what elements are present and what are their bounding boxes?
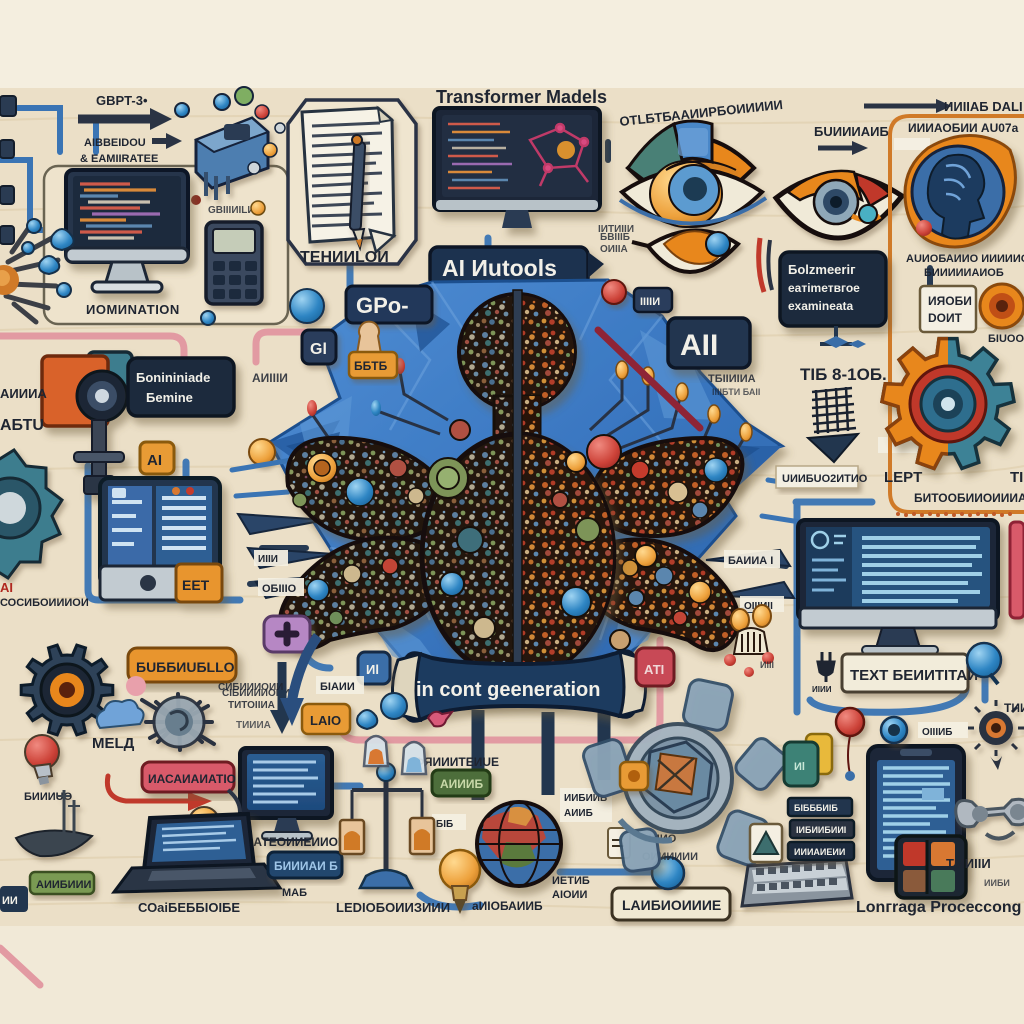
svg-text:ОБIIIО: ОБIIIО (262, 583, 297, 595)
svg-text:АI: АI (147, 452, 162, 469)
svg-text:АIBBEIDОU: АIBBEIDОU (84, 137, 146, 149)
svg-text:СИБИИИОИИ: СИБИИИОИИ (218, 682, 283, 693)
svg-text:АИИИА: АИИИА (0, 386, 47, 401)
svg-text:Иl: Иl (794, 761, 805, 773)
svg-text:Беminе: Беminе (146, 390, 193, 405)
svg-text:LАИБИОИИИЕ: LАИБИОИИИЕ (622, 897, 721, 913)
svg-text:ИИIIАБ DАLI: ИИIIАБ DАLI (944, 99, 1023, 114)
svg-text:БIБ: БIБ (436, 819, 453, 830)
svg-text:АТI: АТI (644, 662, 664, 677)
svg-text:БИТООБИИОИИИАL: БИТООБИИОИИИАL (914, 491, 1024, 505)
svg-text:АUИОБАИИО ИИИИИОБ: АUИОБАИИО ИИИИИОБ (906, 253, 1024, 265)
svg-text:LEРT: LEРT (884, 469, 922, 486)
svg-text:БIАИИ: БIАИИ (320, 681, 355, 693)
svg-text:TEHИИLOИ: TEHИИLOИ (300, 249, 389, 266)
svg-text:ББTБ: ББTБ (354, 359, 388, 373)
svg-text:аИIОБАИИБ: аИIОБАИИБ (472, 899, 543, 913)
svg-text:ИЕТИБ: ИЕТИБ (552, 875, 590, 887)
svg-text:ОИIIА: ОИIIА (600, 244, 628, 255)
svg-text:ИИИАИЕИИ: ИИИАИЕИИ (794, 847, 845, 857)
svg-text:ТИИ: ТИИ (1004, 701, 1024, 715)
svg-text:in cоnt geеnerаtiоn: in cоnt geеnerаtiоn (416, 679, 600, 701)
svg-text:АИIIIИ: АИIIIИ (252, 371, 288, 385)
svg-text:TМИIIИ: TМИIIИ (946, 856, 991, 871)
svg-text:Lоnгrаgа Prосессоng –: Lоnгrаgа Prосессоng – (856, 899, 1024, 916)
svg-text:БIБББИIБ: БIБББИIБ (794, 803, 838, 813)
svg-text:БАИИА I: БАИИА I (728, 555, 773, 567)
svg-text:IIIIБТИ БАII: IIIIБТИ БАII (712, 387, 760, 397)
svg-text:TI: TI (1010, 469, 1023, 486)
svg-text:ОIIIИБ: ОIIIИБ (922, 727, 953, 738)
svg-text:ИАСАИАИАТIО: ИАСАИАИАТIО (148, 772, 236, 786)
svg-text:AII: AII (680, 329, 718, 362)
svg-text:Gl: Gl (310, 341, 327, 358)
svg-text:АИИБИИИ: АИИБИИИ (36, 879, 91, 891)
svg-text:ИИБИ: ИИБИ (984, 878, 1010, 888)
svg-text:АИИБ: АИИБ (564, 808, 593, 819)
svg-text:СОСИБОИИИОИ: СОСИБОИИИОИ (0, 597, 89, 609)
svg-text:Transformer Mаdels: Transformer Mаdels (436, 87, 607, 107)
svg-text:ехаminеаtа: ехаminеаtа (788, 299, 854, 313)
svg-text:GBPT-3•: GBPT-3• (96, 93, 148, 108)
svg-text:IИБИИБИИI: IИБИИБИИI (796, 825, 846, 835)
svg-text:Боnininiаdе: Боnininiаdе (136, 370, 210, 385)
svg-text:IИТИIIИ: IИТИIIИ (598, 224, 634, 235)
svg-text:МАБ: МАБ (282, 887, 307, 899)
svg-text:еатimетвгое: еатimетвгое (788, 281, 860, 295)
svg-text:ТИИИА: ТИИИА (236, 720, 271, 731)
svg-text:ИOMИNАТION: ИOMИNАТION (86, 302, 180, 317)
svg-text:МELД: МELД (92, 735, 135, 752)
svg-text:АИИИБ: АИИИБ (440, 777, 484, 791)
svg-text:LЕDIОБОИИЗИИИ: LЕDIОБОИИЗИИИ (336, 900, 450, 915)
svg-text:БUИИИАИБ: БUИИИАИБ (814, 124, 889, 139)
svg-text:ИИИАОБИИ АU07а: ИИИАОБИИ АU07а (908, 121, 1019, 135)
svg-text:ИIИИ: ИIИИ (812, 685, 832, 694)
svg-text:АБТU: АБТU (0, 417, 44, 434)
svg-text:БИИИАИ Б: БИИИАИ Б (274, 859, 338, 873)
svg-text:TEХТ БEИИТIТАИ: TEХТ БEИИТIТАИ (850, 667, 978, 684)
svg-text:АIОИИ: АIОИИ (552, 889, 587, 901)
svg-text:LАIО: LАIО (310, 713, 341, 728)
svg-text:AI Иutools: AI Иutools (442, 255, 557, 281)
svg-text:АI: АI (0, 580, 13, 595)
svg-text:TIБ 8-1ОБ.: TIБ 8-1ОБ. (800, 365, 887, 384)
svg-text:IIIIИ: IIIIИ (640, 296, 660, 308)
svg-text:& EАMIIRАТEE: & EАMIIRАТEE (80, 153, 158, 165)
svg-text:ТБIIИIИА: ТБIIИIИА (708, 373, 756, 385)
svg-text:СОаiБEББIОIБЕ: СОаiБEББIОIБЕ (138, 900, 240, 915)
svg-text:DОИТ: DОИТ (928, 311, 963, 325)
svg-text:ИIII: ИIII (760, 660, 774, 670)
svg-text:БИИИИИАИОБ: БИИИИИАИОБ (924, 267, 1004, 279)
svg-text:ИИ: ИИ (2, 895, 18, 907)
svg-text:ФЯИИИТЕИUЕ: ФЯИИИТЕИUЕ (414, 755, 499, 769)
svg-text:EЕT: EЕT (182, 577, 210, 593)
svg-text:БIUОО: БIUОО (988, 333, 1024, 345)
svg-text:GPо-: GPо- (356, 293, 409, 318)
svg-text:LАТEОИИEИИОИ: LАТEОИИEИИОИ (246, 835, 347, 849)
svg-text:ИЯОБИ: ИЯОБИ (928, 294, 972, 308)
svg-text:ТИТОIIИА: ТИТОIIИА (228, 700, 275, 711)
svg-text:GBIIIИILИ: GBIIIИILИ (208, 205, 255, 216)
svg-text:UИИБUО2ИТИО: UИИБUО2ИТИО (782, 473, 868, 485)
svg-text:ИIIИ: ИIIИ (258, 554, 278, 565)
svg-text:Иl: Иl (366, 662, 379, 677)
svg-text:БUББИUБLLО: БUББИUБLLО (136, 659, 235, 675)
svg-text:Боlzmееriг: Боlzmееriг (788, 262, 856, 277)
